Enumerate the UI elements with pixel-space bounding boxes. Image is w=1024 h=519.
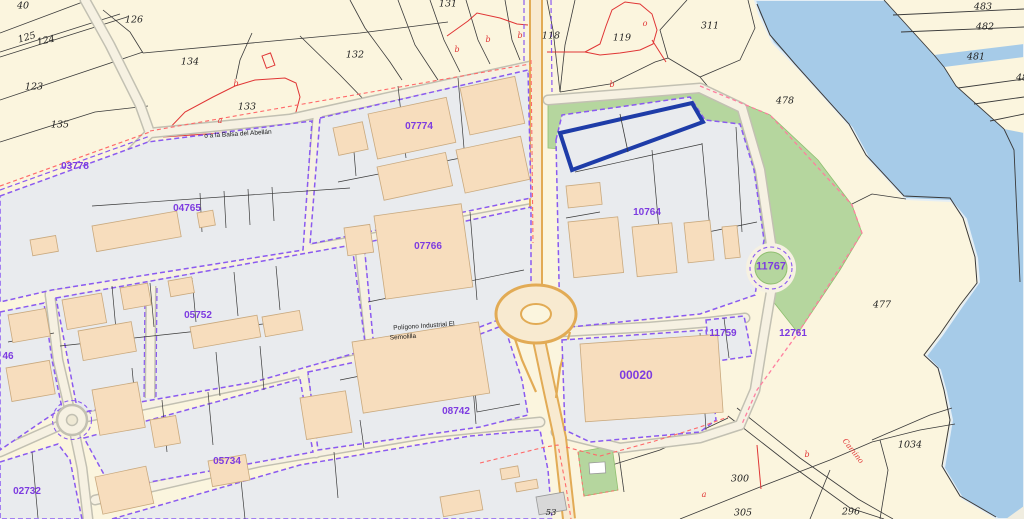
cadastral-map-viewport[interactable]: 0377807774047650776605752107641176711759…	[0, 0, 1024, 519]
east-roundabout	[746, 243, 796, 293]
highway-roundabout	[496, 285, 576, 343]
cadastral-map-canvas	[0, 0, 1024, 519]
